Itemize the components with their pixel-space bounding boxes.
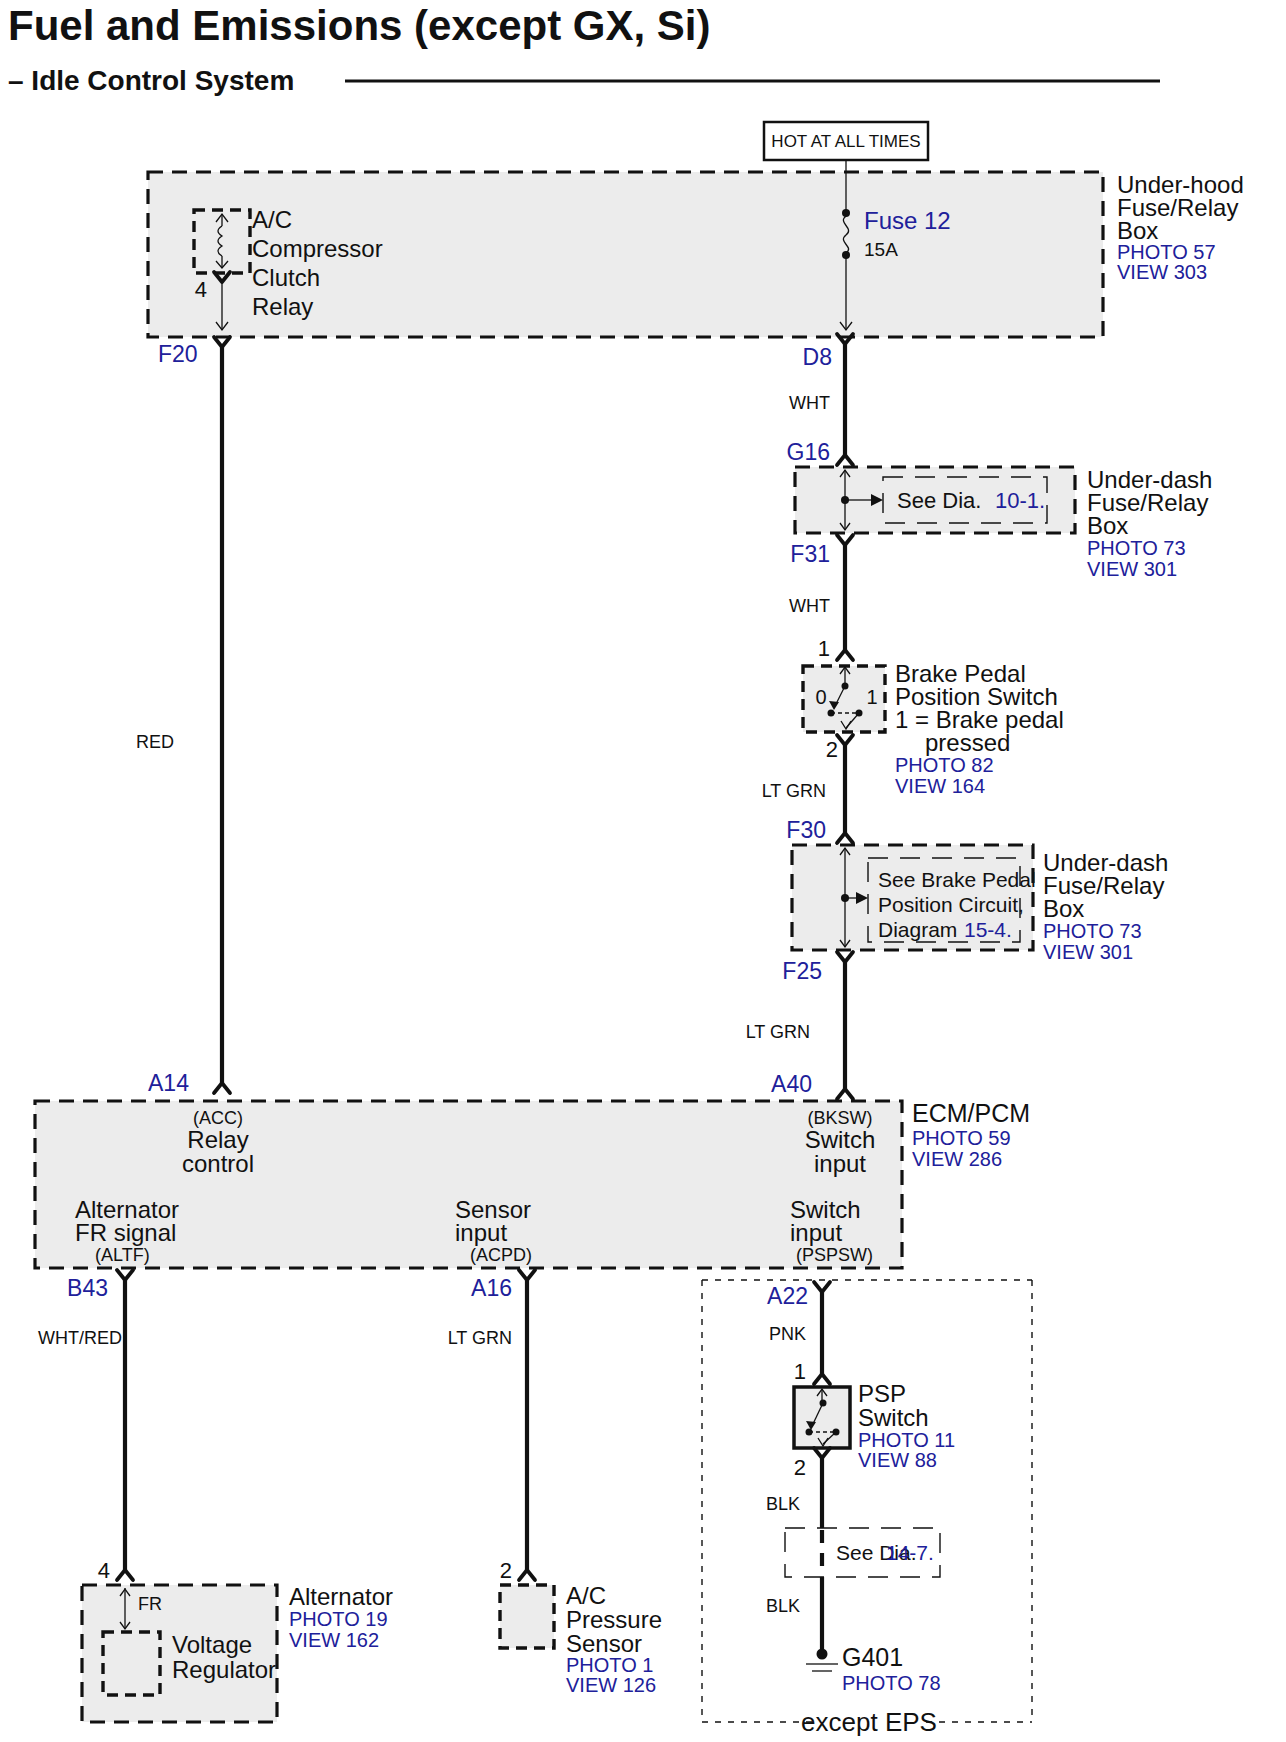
connector-b43 bbox=[117, 1270, 133, 1280]
wire-blk2-label: BLK bbox=[766, 1596, 800, 1616]
ecm-a40-line1: Switch bbox=[805, 1126, 876, 1153]
ecm-a14-line2: control bbox=[182, 1150, 254, 1177]
underdash2-see-line3: Diagram bbox=[878, 918, 957, 941]
terminal-b43: B43 bbox=[67, 1275, 108, 1301]
acsensor-photo-ref: PHOTO 1 bbox=[566, 1654, 653, 1676]
ecm-a40-sub: (BKSW) bbox=[808, 1108, 873, 1128]
underhood-view-ref: VIEW 303 bbox=[1117, 261, 1207, 283]
connector-a16 bbox=[519, 1270, 535, 1280]
hot-banner-label: HOT AT ALL TIMES bbox=[771, 132, 920, 151]
connector-alt-pin4 bbox=[117, 1570, 133, 1580]
ecm-a22-line2: input bbox=[790, 1219, 842, 1246]
connector-brake-pin1 bbox=[837, 650, 853, 660]
ground-name: G401 bbox=[842, 1643, 903, 1671]
voltage-regulator-box bbox=[103, 1632, 160, 1695]
connector-g16 bbox=[837, 455, 853, 465]
ecm-a22-sub: (PSPSW) bbox=[796, 1245, 873, 1265]
voltage-regulator-label-2: Regulator bbox=[172, 1656, 276, 1683]
wire-red-label: RED bbox=[136, 732, 174, 752]
ecm-a16-sub: (ACPD) bbox=[470, 1245, 532, 1265]
connector-a22 bbox=[814, 1282, 830, 1292]
psp-label-1: PSP bbox=[858, 1380, 906, 1407]
alt-pin4-label: 4 bbox=[98, 1558, 110, 1583]
ecm-name: ECM/PCM bbox=[912, 1099, 1030, 1127]
underdash2-view-ref: VIEW 301 bbox=[1043, 941, 1133, 963]
terminal-a22: A22 bbox=[767, 1283, 808, 1309]
brake-switch-label-4: pressed bbox=[925, 729, 1010, 756]
underdash1-photo-ref: PHOTO 73 bbox=[1087, 537, 1186, 559]
underdash2-see-ref: 15-4. bbox=[964, 918, 1012, 941]
fuse-terminal-bottom bbox=[842, 251, 850, 259]
fuse-terminal-top bbox=[842, 209, 850, 217]
connector-brake-pin2 bbox=[837, 735, 853, 745]
wire-blk1-label: BLK bbox=[766, 1494, 800, 1514]
underdash1-label-3: Box bbox=[1087, 512, 1128, 539]
psp-photo-ref: PHOTO 11 bbox=[858, 1429, 955, 1451]
terminal-f31: F31 bbox=[790, 541, 830, 567]
ecm-photo-ref: PHOTO 59 bbox=[912, 1127, 1011, 1149]
page-title: Fuel and Emissions (except GX, Si) bbox=[8, 2, 711, 49]
page-subtitle: – Idle Control System bbox=[8, 65, 294, 96]
terminal-f20: F20 bbox=[158, 341, 198, 367]
alt-fr-label: FR bbox=[138, 1594, 162, 1614]
underdash1-see-label: See Dia. bbox=[897, 488, 981, 513]
terminal-f30: F30 bbox=[786, 817, 826, 843]
underdash2-see-line2: Position Circuit, bbox=[878, 893, 1024, 916]
wire-ltgrn1-label: LT GRN bbox=[762, 781, 826, 801]
acsensor-view-ref: VIEW 126 bbox=[566, 1674, 656, 1696]
brake-pin2-label: 2 bbox=[826, 737, 838, 762]
underdash2-see-line1: See Brake Pedal bbox=[878, 868, 1036, 891]
ac-pressure-sensor-box bbox=[500, 1585, 554, 1648]
ecm-a14-line1: Relay bbox=[187, 1126, 248, 1153]
terminal-d8: D8 bbox=[803, 344, 832, 370]
connector-f31 bbox=[837, 535, 853, 545]
wiring-diagram-page: Fuel and Emissions (except GX, Si) – Idl… bbox=[0, 0, 1286, 1742]
terminal-a14: A14 bbox=[148, 1070, 189, 1096]
acsensor-label-2: Pressure bbox=[566, 1606, 662, 1633]
underdash2-label-3: Box bbox=[1043, 895, 1084, 922]
idle-control-diagram: Fuel and Emissions (except GX, Si) – Idl… bbox=[0, 0, 1286, 1742]
fuse-name: Fuse 12 bbox=[864, 207, 951, 234]
fuse-rating: 15A bbox=[864, 239, 898, 260]
ecm-a16-line2: input bbox=[455, 1219, 507, 1246]
ground-photo-ref: PHOTO 78 bbox=[842, 1672, 941, 1694]
ecm-b43-line2: FR signal bbox=[75, 1219, 176, 1246]
relay-pin4-label: 4 bbox=[195, 277, 207, 302]
psp-label-2: Switch bbox=[858, 1404, 929, 1431]
alternator-view-ref: VIEW 162 bbox=[289, 1629, 379, 1651]
alternator-name: Alternator bbox=[289, 1583, 393, 1610]
ecm-view-ref: VIEW 286 bbox=[912, 1148, 1002, 1170]
wire-pnk-label: PNK bbox=[769, 1324, 806, 1344]
eps-label: except EPS bbox=[801, 1707, 937, 1737]
acsensor-label-3: Sensor bbox=[566, 1630, 642, 1657]
relay-label-1: A/C bbox=[252, 206, 292, 233]
see147-ref: 14-7. bbox=[886, 1541, 934, 1564]
wire-wht2-label: WHT bbox=[789, 596, 830, 616]
connector-acsensor-pin2 bbox=[519, 1570, 535, 1580]
ecm-a40-line2: input bbox=[814, 1150, 866, 1177]
underdash2-photo-ref: PHOTO 73 bbox=[1043, 920, 1142, 942]
connector-psp-pin1 bbox=[814, 1374, 830, 1384]
connector-f30 bbox=[837, 833, 853, 843]
wire-whtred-label: WHT/RED bbox=[38, 1328, 122, 1348]
relay-label-2: Compressor bbox=[252, 235, 383, 262]
psp-view-ref: VIEW 88 bbox=[858, 1449, 937, 1471]
wire-wht1-label: WHT bbox=[789, 393, 830, 413]
relay-label-3: Clutch bbox=[252, 264, 320, 291]
connector-a14 bbox=[214, 1083, 230, 1093]
connector-a40 bbox=[837, 1089, 853, 1099]
acsensor-label-1: A/C bbox=[566, 1582, 606, 1609]
wire-ltgrn2-label: LT GRN bbox=[746, 1022, 810, 1042]
ecm-b43-sub: (ALTF) bbox=[95, 1245, 150, 1265]
terminal-g16: G16 bbox=[787, 439, 830, 465]
acsensor-pin2-label: 2 bbox=[500, 1558, 512, 1583]
brake-switch-pos0: 0 bbox=[815, 686, 826, 708]
psp-pin2-label: 2 bbox=[794, 1455, 806, 1480]
terminal-a16: A16 bbox=[471, 1275, 512, 1301]
brake-switch-photo-ref: PHOTO 82 bbox=[895, 754, 994, 776]
underhood-label-3: Box bbox=[1117, 217, 1158, 244]
psp-pin1-label: 1 bbox=[794, 1359, 806, 1384]
underdash1-view-ref: VIEW 301 bbox=[1087, 558, 1177, 580]
brake-pin1-label: 1 bbox=[818, 636, 830, 661]
underhood-photo-ref: PHOTO 57 bbox=[1117, 241, 1216, 263]
connector-f25 bbox=[837, 952, 853, 962]
brake-switch-view-ref: VIEW 164 bbox=[895, 775, 985, 797]
underdash1-see-ref: 10-1. bbox=[995, 488, 1045, 513]
brake-switch-pos1: 1 bbox=[866, 686, 877, 708]
terminal-f25: F25 bbox=[782, 958, 822, 984]
terminal-a40: A40 bbox=[771, 1071, 812, 1097]
ecm-a14-sub: (ACC) bbox=[193, 1108, 243, 1128]
alternator-photo-ref: PHOTO 19 bbox=[289, 1608, 388, 1630]
wire-ltgrn3-label: LT GRN bbox=[448, 1328, 512, 1348]
ground-dot bbox=[817, 1649, 828, 1660]
voltage-regulator-label-1: Voltage bbox=[172, 1631, 252, 1658]
relay-label-4: Relay bbox=[252, 293, 313, 320]
